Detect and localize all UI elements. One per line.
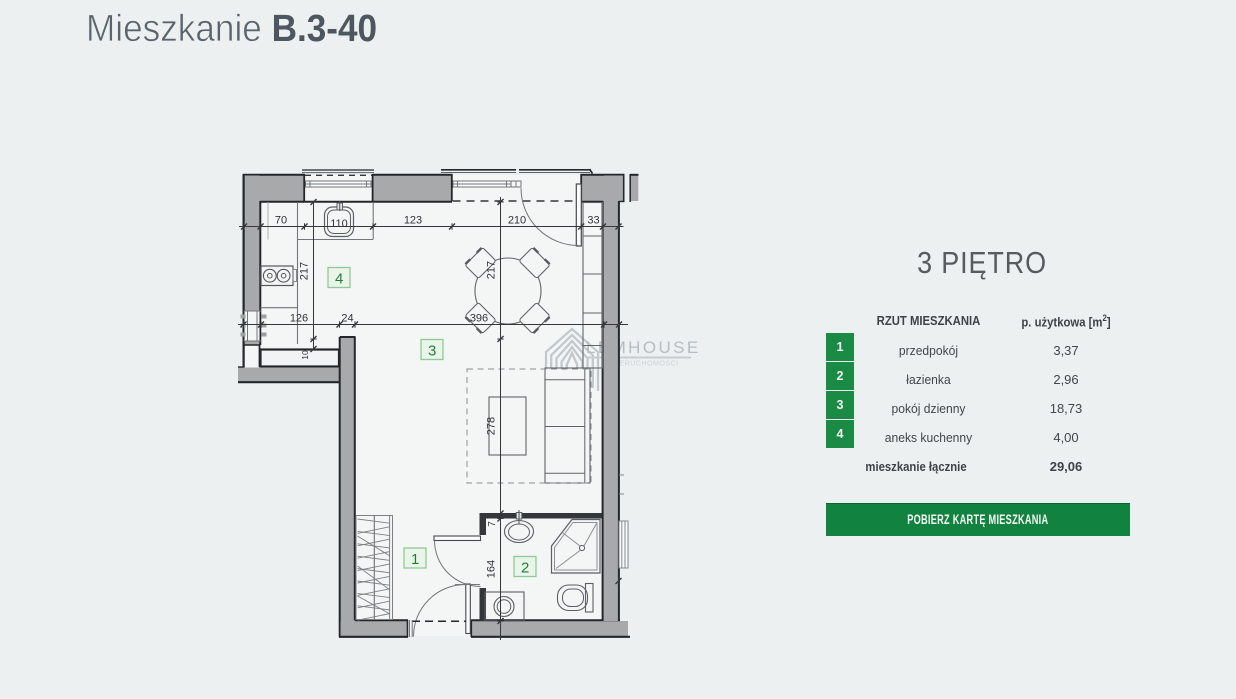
svg-text:396: 396 <box>470 313 488 325</box>
svg-text:217: 217 <box>299 262 311 280</box>
svg-text:210: 210 <box>508 215 526 227</box>
svg-text:123: 123 <box>404 215 422 227</box>
svg-text:2: 2 <box>521 559 529 576</box>
svg-text:7: 7 <box>487 521 498 527</box>
svg-text:70: 70 <box>275 215 287 227</box>
svg-text:110: 110 <box>330 218 348 230</box>
svg-text:4: 4 <box>335 270 343 287</box>
svg-text:126: 126 <box>290 313 308 325</box>
svg-text:164: 164 <box>486 560 498 578</box>
svg-text:3: 3 <box>428 342 436 359</box>
svg-text:24: 24 <box>341 313 353 325</box>
svg-text:217: 217 <box>486 261 498 279</box>
svg-text:278: 278 <box>486 417 498 435</box>
svg-text:NIERUCHOMOŚCI: NIERUCHOMOŚCI <box>611 359 678 368</box>
svg-text:33: 33 <box>587 215 599 227</box>
svg-text:1: 1 <box>411 551 419 568</box>
svg-text:10: 10 <box>300 350 310 360</box>
